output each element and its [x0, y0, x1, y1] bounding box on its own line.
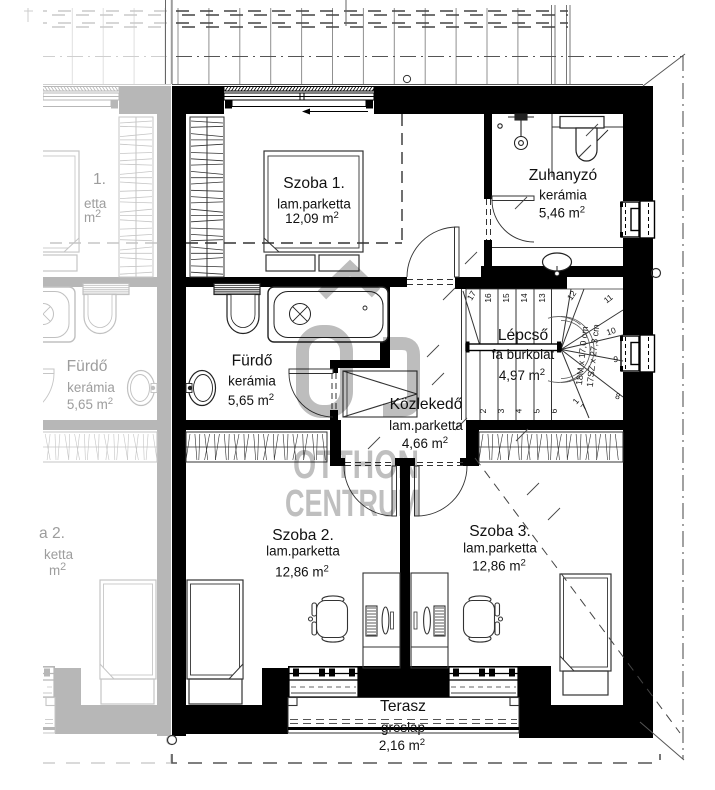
svg-text:lam.parketta: lam.parketta	[463, 541, 537, 556]
svg-text:12,09 m2: 12,09 m2	[285, 210, 339, 226]
svg-text:CENTRUM: CENTRUM	[285, 483, 420, 525]
svg-text:a 2.: a 2.	[39, 525, 65, 542]
svg-text:Szoba 3.: Szoba 3.	[469, 523, 531, 540]
svg-text:15: 15	[501, 293, 511, 303]
svg-text:12,86 m2: 12,86 m2	[275, 564, 329, 580]
svg-text:ketta: ketta	[44, 547, 74, 562]
svg-text:6: 6	[549, 408, 559, 413]
svg-text:16: 16	[483, 293, 493, 303]
svg-text:4: 4	[514, 408, 524, 413]
svg-text:lam.parketta: lam.parketta	[389, 418, 463, 433]
svg-text:Lépcső: Lépcső	[498, 327, 549, 344]
svg-text:Fürdő: Fürdő	[67, 358, 108, 375]
svg-text:lam.parketta: lam.parketta	[277, 197, 351, 212]
svg-text:5,46 m2: 5,46 m2	[539, 205, 585, 221]
svg-text:2,16 m2: 2,16 m2	[379, 737, 425, 753]
svg-text:fa burkolat: fa burkolat	[492, 347, 555, 362]
svg-text:kerámia: kerámia	[539, 188, 587, 203]
svg-text:2: 2	[478, 408, 488, 413]
svg-text:OTTHON: OTTHON	[293, 443, 419, 487]
svg-text:Fürdő: Fürdő	[232, 353, 273, 370]
svg-text:Zuhanyzó: Zuhanyzó	[529, 167, 598, 184]
svg-text:kerámia: kerámia	[228, 374, 276, 389]
svg-text:5,65 m2: 5,65 m2	[228, 392, 274, 408]
svg-text:1.: 1.	[93, 171, 106, 188]
svg-text:lam.parketta: lam.parketta	[266, 544, 340, 559]
svg-text:12,86 m2: 12,86 m2	[472, 558, 526, 574]
svg-text:greslap: greslap	[381, 720, 425, 735]
svg-text:5: 5	[531, 408, 541, 413]
svg-text:Szoba 2.: Szoba 2.	[272, 527, 334, 544]
svg-text:kerámia: kerámia	[67, 380, 115, 395]
svg-text:Szoba 1.: Szoba 1.	[283, 175, 345, 192]
svg-text:13: 13	[537, 293, 547, 303]
svg-text:14: 14	[519, 293, 529, 303]
svg-text:3: 3	[496, 408, 506, 413]
svg-text:4,97 m2: 4,97 m2	[499, 367, 545, 383]
svg-text:Terasz: Terasz	[380, 698, 426, 715]
svg-text:5,65 m2: 5,65 m2	[67, 396, 113, 412]
